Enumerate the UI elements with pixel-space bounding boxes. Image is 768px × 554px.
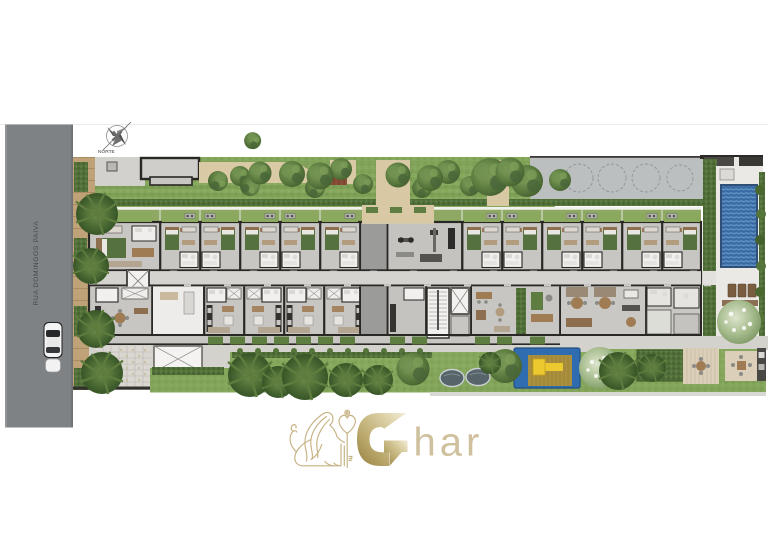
svg-text:NORTE: NORTE bbox=[98, 149, 115, 155]
svg-text:har: har bbox=[414, 421, 484, 465]
svg-text:RUA DOMINGOS PAIVA: RUA DOMINGOS PAIVA bbox=[33, 221, 40, 306]
